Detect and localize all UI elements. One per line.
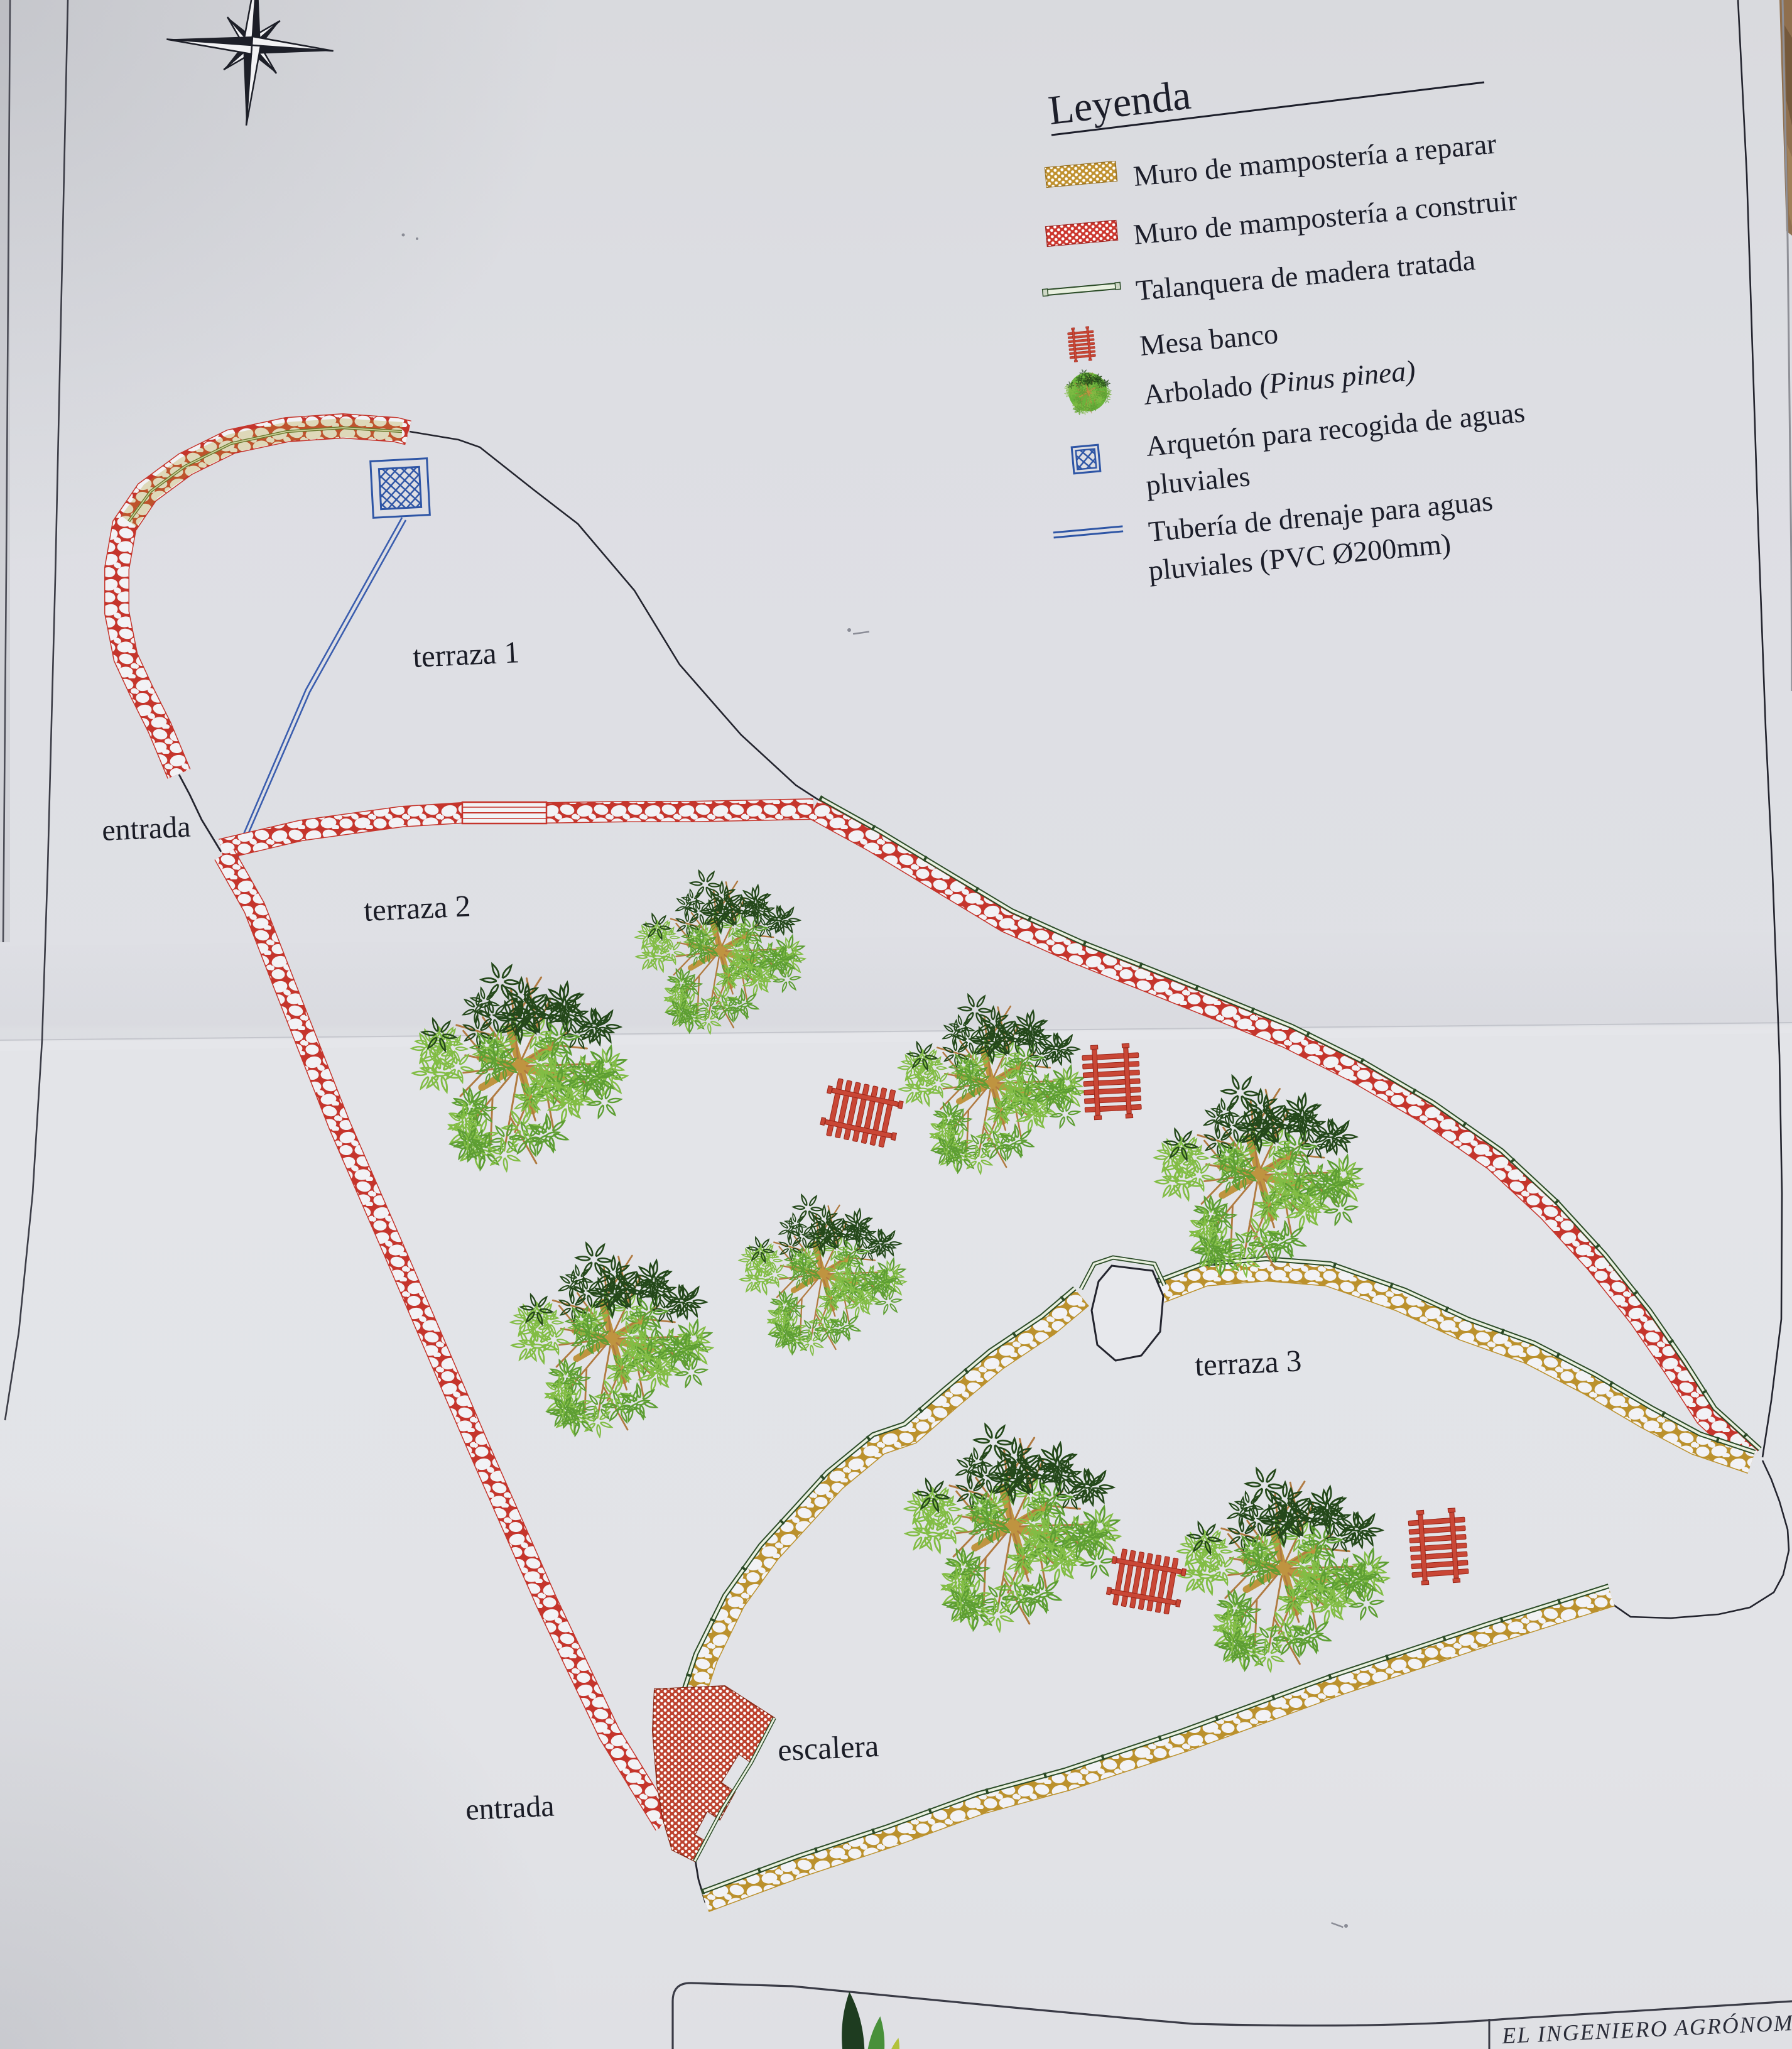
svg-text:terraza 3: terraza 3 (1194, 1343, 1302, 1383)
svg-text:terraza 1: terraza 1 (412, 634, 520, 674)
svg-text:terraza 2: terraza 2 (363, 888, 471, 928)
svg-text:entrada: entrada (101, 810, 191, 847)
svg-text:entrada: entrada (465, 1790, 555, 1827)
svg-text:escalera: escalera (777, 1728, 879, 1768)
